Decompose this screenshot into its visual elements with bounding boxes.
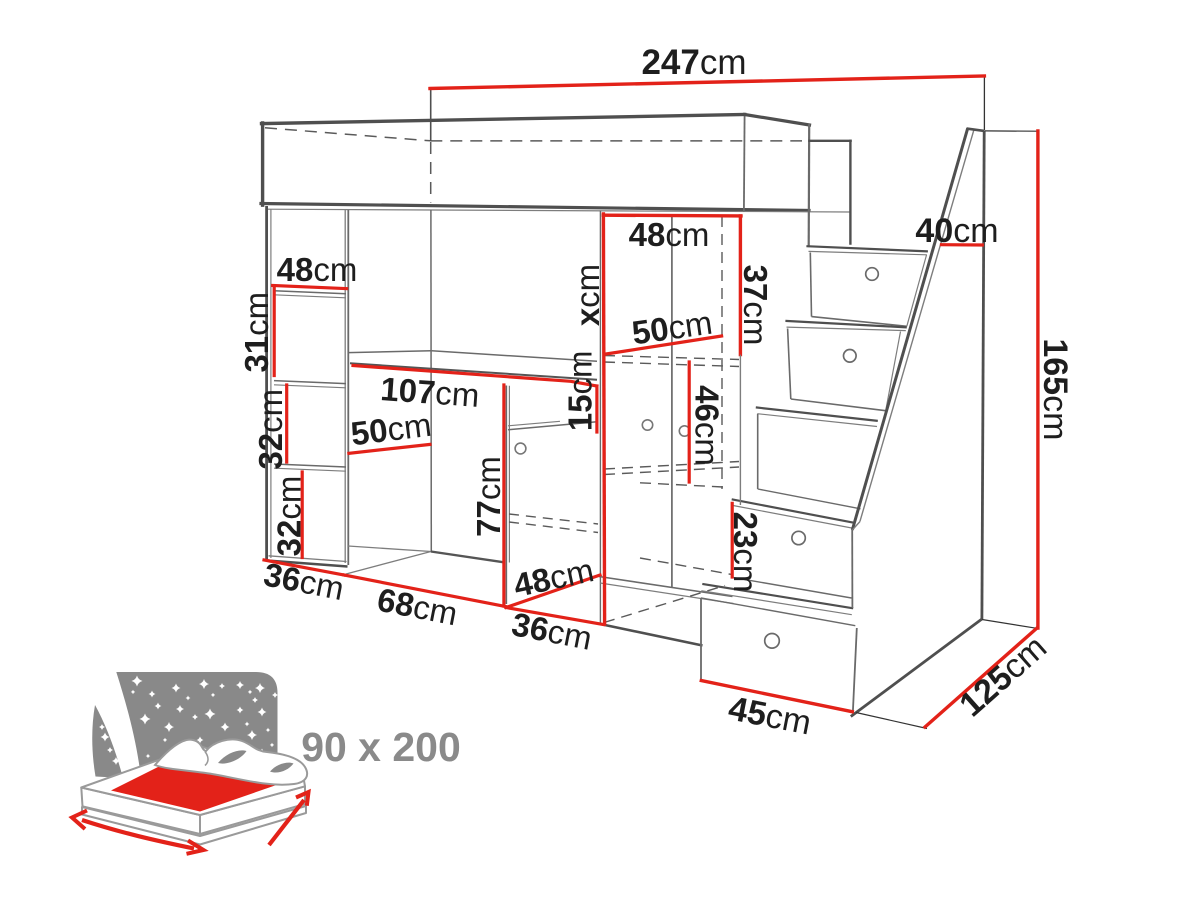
svg-text:32cm: 32cm (252, 389, 289, 470)
svg-text:23cm: 23cm (727, 512, 764, 593)
svg-text:48cm: 48cm (629, 216, 710, 253)
svg-text:247cm: 247cm (641, 43, 746, 82)
svg-text:32cm: 32cm (271, 476, 308, 557)
svg-text:31cm: 31cm (238, 292, 275, 373)
svg-text:77cm: 77cm (470, 456, 507, 537)
svg-text:xcm: xcm (569, 264, 606, 326)
svg-text:40cm: 40cm (915, 212, 998, 250)
svg-text:165cm: 165cm (1036, 338, 1074, 440)
svg-text:90 x 200: 90 x 200 (301, 724, 461, 770)
svg-text:48cm: 48cm (277, 251, 358, 288)
svg-text:37cm: 37cm (737, 265, 774, 346)
svg-text:15cm: 15cm (562, 350, 599, 431)
svg-text:107cm: 107cm (379, 370, 480, 414)
svg-text:46cm: 46cm (689, 385, 726, 466)
